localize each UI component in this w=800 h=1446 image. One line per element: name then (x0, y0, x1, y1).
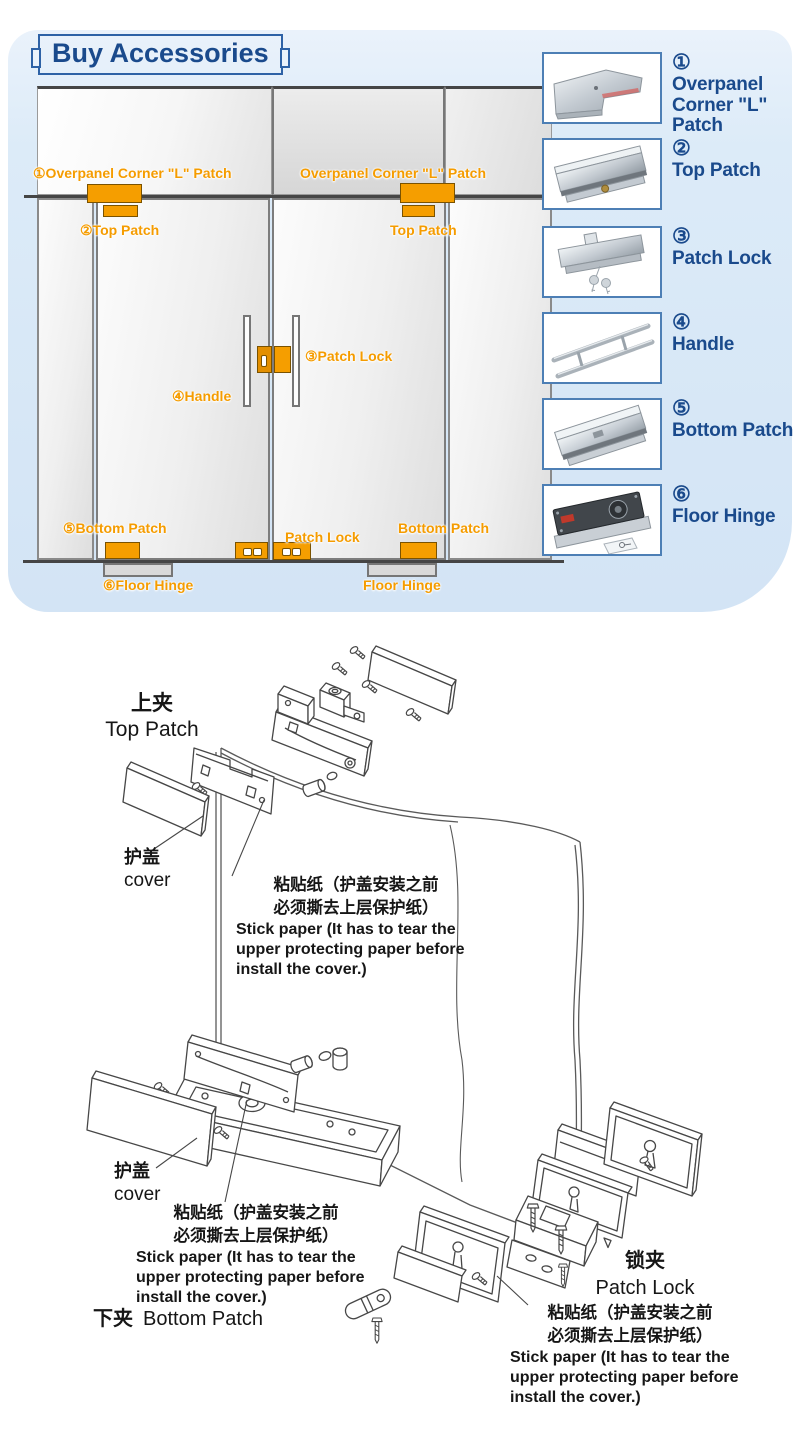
floor-hinge-image (542, 484, 662, 556)
buy-accessories-panel: Buy Accessories (8, 30, 792, 612)
glass-panel (216, 748, 583, 1247)
stick-note-cn-line1: 粘贴纸（护盖安装之前 (136, 1202, 376, 1225)
patch-lock-icon (544, 228, 660, 296)
product-number: ④ (672, 312, 794, 334)
product-number: ③ (672, 226, 794, 248)
stick-note-en-line1: Stick paper (It has to tear the (510, 1348, 750, 1368)
product-label: Top Patch (672, 161, 794, 182)
cover-label-top: 护盖 cover (124, 846, 170, 892)
product-label: Patch Lock (672, 249, 794, 270)
patch-lock-label-en: Patch Lock (585, 1275, 705, 1301)
stick-note-cn-line2: 必须撕去上层保护纸） (136, 1225, 376, 1248)
patch-lock-body (257, 346, 272, 373)
product-number: ① (672, 52, 794, 74)
product-label: Overpanel Corner "L" Patch (672, 75, 794, 137)
door-handle-icon (544, 314, 660, 382)
stick-note-en-line1: Stick paper (It has to tear the (136, 1248, 376, 1268)
page: Buy Accessories (0, 0, 800, 1446)
top-patch-label-cn: 上夹 (86, 690, 218, 717)
stick-note-cn-line2: 必须撕去上层保护纸） (236, 897, 476, 920)
cover-label-top-cn: 护盖 (124, 846, 170, 869)
product-number: ② (672, 138, 794, 160)
product-label: Bottom Patch (672, 421, 794, 442)
corner-l-patch-right-top (400, 183, 455, 203)
corner-l-patch-right-bottom (402, 205, 435, 217)
top-patch-icon (544, 140, 660, 208)
label-overpanel-left: ①Overpanel Corner "L" Patch (33, 165, 232, 182)
bottom-patch-label-cn: 下夹 (93, 1306, 133, 1333)
label-floor-hinge-left: ⑥Floor Hinge (103, 577, 193, 594)
bottom-patch-right (400, 542, 437, 559)
product-row-handle[interactable]: ④ Handle (542, 312, 794, 386)
label-overpanel-right: Overpanel Corner "L" Patch (300, 165, 486, 181)
product-label: Floor Hinge (672, 507, 794, 528)
patch-lock-image (542, 226, 662, 298)
bottom-patch-image (542, 398, 662, 470)
patch-lock-label: 锁夹 Patch Lock (585, 1248, 705, 1301)
stick-note-en-line2: upper protecting paper before (136, 1268, 376, 1288)
product-number: ⑤ (672, 398, 794, 420)
stick-note-cn-line2: 必须撕去上层保护纸） (510, 1325, 750, 1348)
product-row-top-patch[interactable]: ② Top Patch (542, 138, 794, 212)
cover-label-bottom: 护盖 cover (114, 1160, 160, 1206)
stick-note-en-line2: upper protecting paper before (510, 1368, 750, 1388)
bottom-patch-label: 下夹 Bottom Patch (93, 1306, 263, 1333)
stick-note-cn-line1: 粘贴纸（护盖安装之前 (236, 874, 476, 897)
corner-l-patch-left-top (87, 184, 142, 203)
handle-image (542, 312, 662, 384)
top-patch-label: 上夹 Top Patch (86, 690, 218, 743)
label-patch-lock-mid: ③Patch Lock (305, 348, 392, 365)
top-patch-image (542, 138, 662, 210)
door-handle-right-bar (292, 315, 300, 407)
corner-l-patch-left-bottom (103, 205, 138, 217)
bottom-patch-icon (544, 400, 660, 468)
floor-hinge-plate-left (103, 563, 173, 577)
cover-label-bottom-cn: 护盖 (114, 1160, 160, 1183)
stick-note-en-line2: upper protecting paper before (236, 940, 476, 960)
patch-lock-keeper (274, 346, 291, 373)
top-patch-assembly (272, 645, 456, 797)
product-row-bottom-patch[interactable]: ⑤ Bottom Patch (542, 398, 794, 472)
label-bottom-patch-right: Bottom Patch (398, 520, 489, 536)
stick-note-en-line1: Stick paper (It has to tear the (236, 920, 476, 940)
label-handle: ④Handle (172, 388, 231, 405)
page-title: Buy Accessories (38, 34, 283, 75)
cover-label-top-en: cover (124, 869, 170, 892)
product-label: Handle (672, 335, 794, 356)
fixed-side-panel-right (448, 198, 552, 560)
fixed-side-panel-left (37, 198, 94, 560)
title-frame-tab-right (280, 48, 290, 68)
top-patch-label-en: Top Patch (86, 717, 218, 743)
patch-lock-label-cn: 锁夹 (585, 1248, 705, 1275)
stick-note-en-line3: install the cover.) (510, 1388, 750, 1408)
bottom-patch-lock-left (235, 542, 268, 559)
installation-exploded-diagram: 上夹 Top Patch 护盖 cover 粘贴纸（护盖安装之前 必须撕去上层保… (0, 616, 800, 1446)
stick-note-en-line3: install the cover.) (136, 1288, 376, 1308)
corner-l-patch-icon (544, 54, 660, 122)
stick-note-en-line3: install the cover.) (236, 960, 476, 980)
label-bottom-patch-left: ⑤Bottom Patch (63, 520, 167, 537)
product-row-patch-lock[interactable]: ③ Patch Lock (542, 226, 794, 300)
stick-paper-note-bottom: 粘贴纸（护盖安装之前 必须撕去上层保护纸） Stick paper (It ha… (136, 1202, 376, 1308)
label-floor-hinge-right: Floor Hinge (363, 577, 441, 593)
door-handle-left-bar (243, 315, 251, 407)
floor-hinge-plate-right (367, 563, 437, 577)
bottom-patch-label-en: Bottom Patch (143, 1306, 263, 1332)
product-number: ⑥ (672, 484, 794, 506)
floor-hinge-icon (544, 486, 660, 554)
page-title-text: Buy Accessories (52, 38, 269, 68)
label-top-patch-right: Top Patch (390, 222, 457, 238)
label-top-patch-left: ②Top Patch (80, 222, 159, 239)
product-row-overpanel-corner-l-patch[interactable]: ① Overpanel Corner "L" Patch (542, 52, 794, 126)
stick-paper-note-lock: 粘贴纸（护盖安装之前 必须撕去上层保护纸） Stick paper (It ha… (510, 1302, 750, 1408)
stick-note-cn-line1: 粘贴纸（护盖安装之前 (510, 1302, 750, 1325)
product-row-floor-hinge[interactable]: ⑥ Floor Hinge (542, 484, 794, 558)
title-frame-tab-left (31, 48, 41, 68)
label-patch-lock-bottom: Patch Lock (285, 529, 360, 545)
corner-l-patch-image (542, 52, 662, 124)
bottom-patch-left (105, 542, 140, 559)
stick-paper-note-top: 粘贴纸（护盖安装之前 必须撕去上层保护纸） Stick paper (It ha… (236, 874, 476, 980)
